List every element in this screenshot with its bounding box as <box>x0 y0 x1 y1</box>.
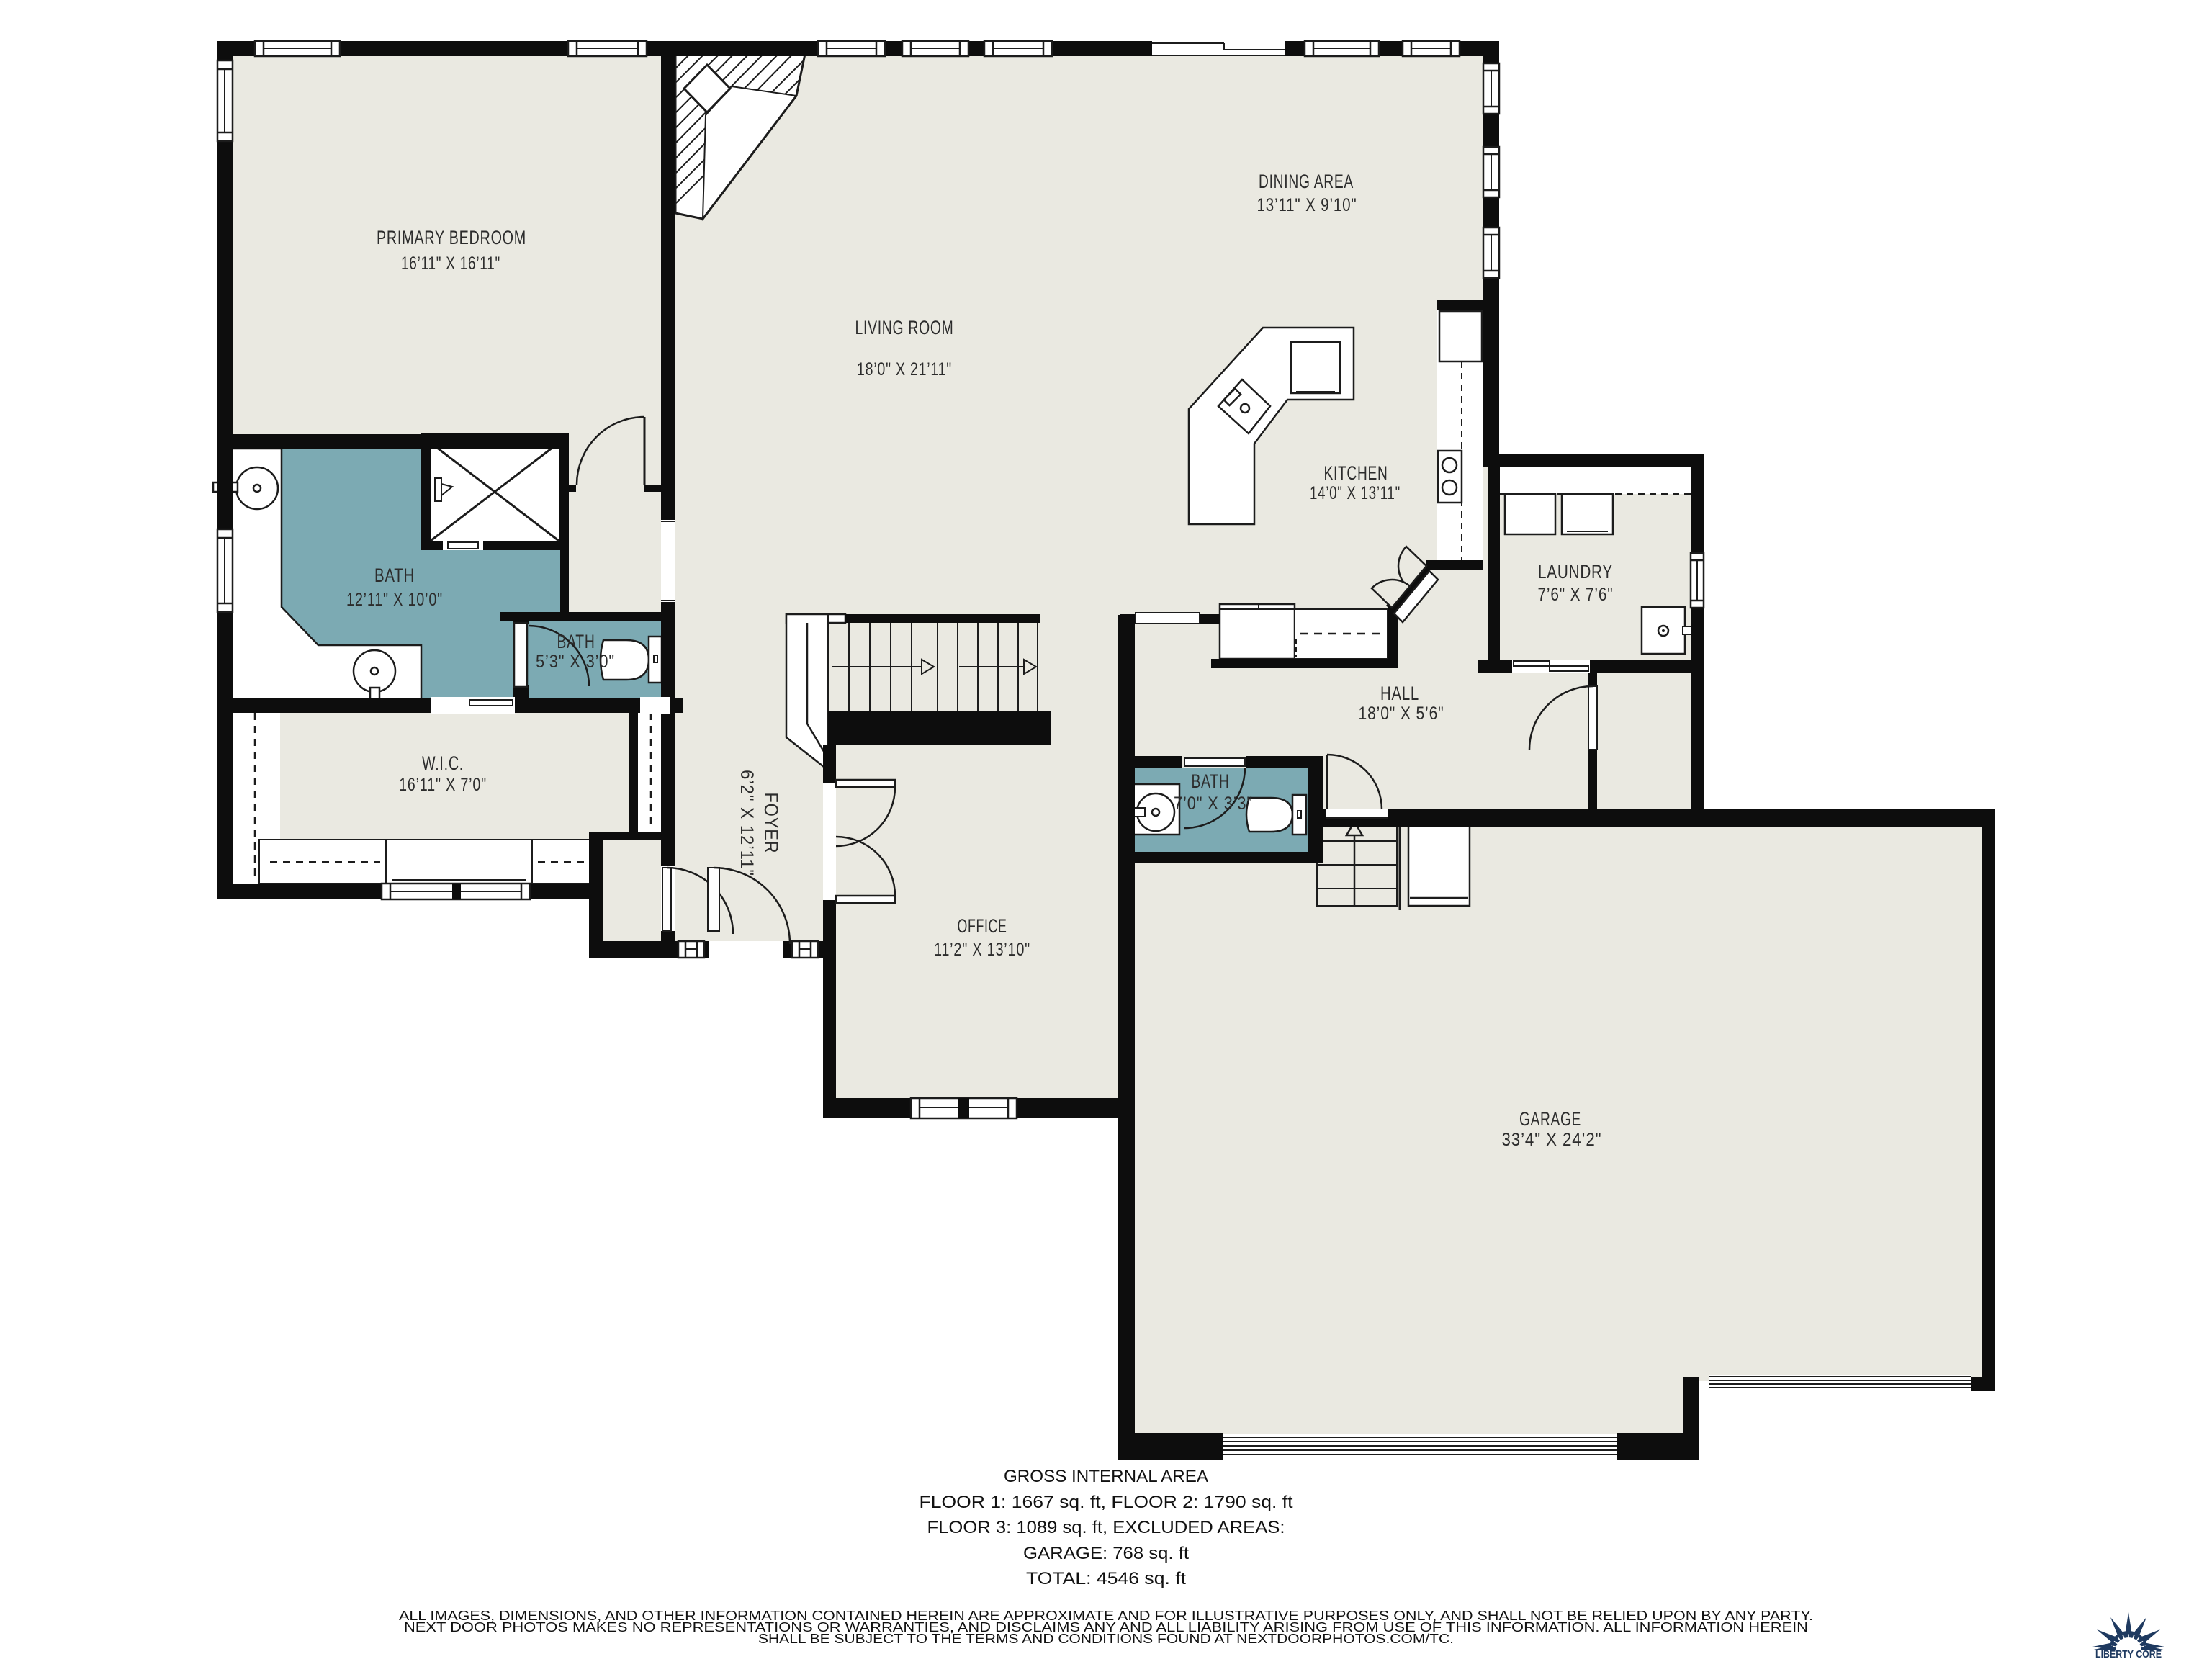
svg-text:TOTAL: 4546 sq. ft: TOTAL: 4546 sq. ft <box>1026 1569 1186 1588</box>
svg-text:KITCHEN: KITCHEN <box>1324 462 1388 484</box>
svg-text:LIBERTY CORE: LIBERTY CORE <box>2095 1648 2162 1659</box>
svg-text:BATH: BATH <box>557 631 595 652</box>
svg-text:11’2" X 13’10": 11’2" X 13’10" <box>934 940 1030 960</box>
svg-text:DINING AREA: DINING AREA <box>1259 171 1354 192</box>
svg-text:OFFICE: OFFICE <box>958 915 1007 937</box>
svg-text:18’0" X 21’11": 18’0" X 21’11" <box>857 359 952 379</box>
svg-text:FOYER: FOYER <box>760 793 782 854</box>
svg-text:LIVING ROOM: LIVING ROOM <box>855 317 954 338</box>
svg-text:PRIMARY BEDROOM: PRIMARY BEDROOM <box>377 227 526 248</box>
svg-text:FLOOR 1: 1667 sq. ft, FLOOR 2:: FLOOR 1: 1667 sq. ft, FLOOR 2: 1790 sq. … <box>920 1493 1293 1512</box>
svg-text:16’11" X 16’11": 16’11" X 16’11" <box>401 253 500 274</box>
svg-text:GARAGE: 768 sq. ft: GARAGE: 768 sq. ft <box>1023 1544 1189 1563</box>
svg-text:14’0" X 13’11": 14’0" X 13’11" <box>1310 483 1401 503</box>
svg-text:18’0" X 5’6": 18’0" X 5’6" <box>1359 703 1444 724</box>
svg-text:LAUNDRY: LAUNDRY <box>1538 561 1613 583</box>
svg-text:BATH: BATH <box>374 565 415 586</box>
svg-text:GARAGE: GARAGE <box>1519 1108 1581 1130</box>
svg-text:W.I.C.: W.I.C. <box>422 752 464 774</box>
svg-text:BATH: BATH <box>1192 770 1230 792</box>
svg-text:FLOOR 3: 1089 sq. ft, EXCLUDED: FLOOR 3: 1089 sq. ft, EXCLUDED AREAS: <box>927 1518 1285 1537</box>
svg-text:12’11" X 10’0": 12’11" X 10’0" <box>346 590 443 610</box>
svg-text:16’11" X 7’0": 16’11" X 7’0" <box>399 775 487 795</box>
svg-text:33’4" X 24’2": 33’4" X 24’2" <box>1502 1130 1602 1150</box>
svg-text:7’0" X 3’3": 7’0" X 3’3" <box>1174 793 1253 814</box>
svg-text:SHALL BE SUBJECT TO THE TERMS: SHALL BE SUBJECT TO THE TERMS AND CONDIT… <box>758 1632 1454 1646</box>
svg-text:HALL: HALL <box>1380 683 1419 704</box>
svg-text:5’3" X 3’0": 5’3" X 3’0" <box>536 652 615 672</box>
svg-text:7’6" X 7’6": 7’6" X 7’6" <box>1538 585 1614 605</box>
svg-text:6’2" X 12’11": 6’2" X 12’11" <box>737 770 757 876</box>
svg-text:13’11" X 9’10": 13’11" X 9’10" <box>1257 195 1357 215</box>
svg-text:GROSS INTERNAL AREA: GROSS INTERNAL AREA <box>1004 1467 1208 1486</box>
